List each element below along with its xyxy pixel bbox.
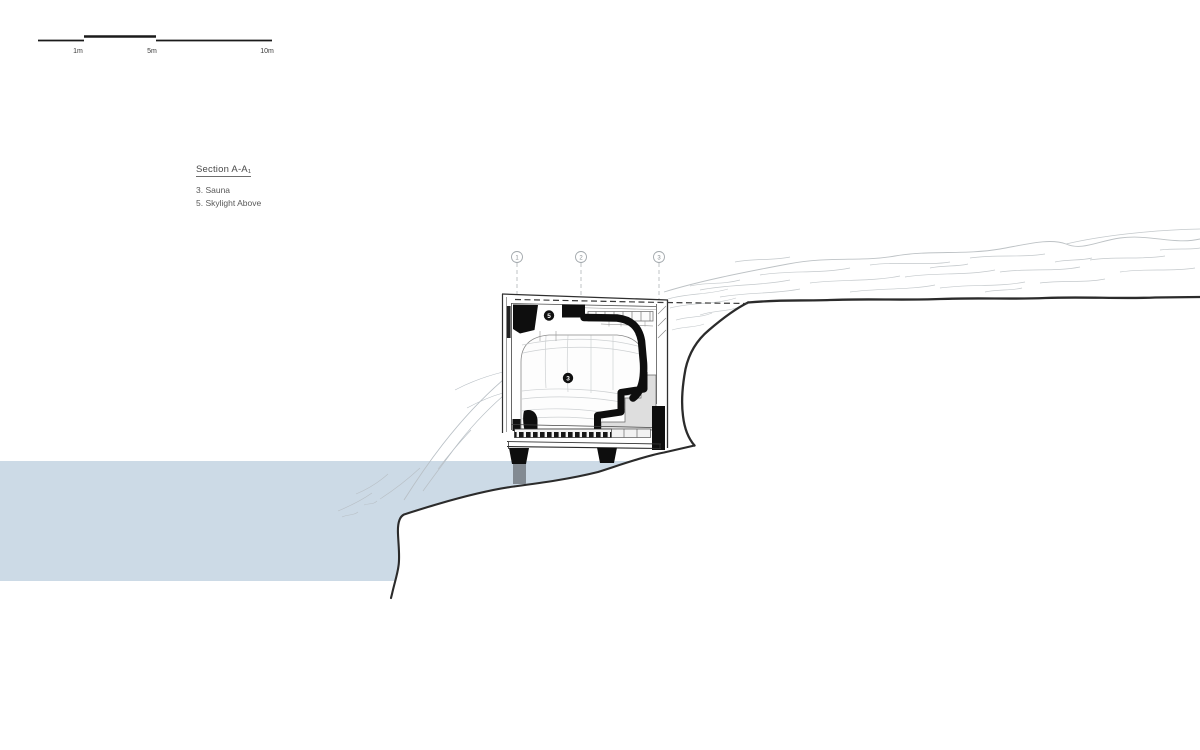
scale-label-5m: 5m: [147, 48, 157, 55]
support-footing-left: [509, 448, 529, 464]
hill-outline: [664, 237, 1200, 292]
skylight-callout-label: 5: [547, 313, 551, 320]
legend-note-sauna: 3. Sauna: [196, 184, 261, 197]
legend: 3. Sauna 5. Skylight Above: [196, 184, 261, 210]
cliff-outline: [682, 303, 748, 446]
water-body: [0, 461, 640, 581]
hill-outline-2: [1066, 229, 1200, 244]
scale-label-10m: 10m: [260, 48, 274, 55]
deck-boards: [515, 429, 612, 438]
scale-bar: 1m 5m 10m: [38, 37, 274, 56]
floor-frame-right: [612, 429, 651, 438]
right-wall-base-column: [652, 406, 665, 450]
insulation-block-left: [513, 305, 538, 334]
section-drawing: 1m 5m 10m: [0, 0, 1200, 750]
support-post-in-water: [513, 464, 526, 484]
section-title: Section A-A₁: [196, 164, 251, 177]
scale-label-1m: 1m: [73, 48, 83, 55]
rock-sketch-hill: [664, 229, 1200, 297]
legend-note-skylight: 5. Skylight Above: [196, 197, 261, 210]
sauna-building: 5 3: [502, 294, 748, 484]
ground-line: [748, 297, 1200, 303]
architectural-section-sheet: 1m 5m 10m: [0, 0, 1200, 750]
wall-strip-left: [507, 306, 511, 338]
title-block: Section A-A₁: [196, 159, 251, 177]
support-footing-right: [597, 448, 617, 464]
sauna-callout-label: 3: [566, 376, 570, 383]
